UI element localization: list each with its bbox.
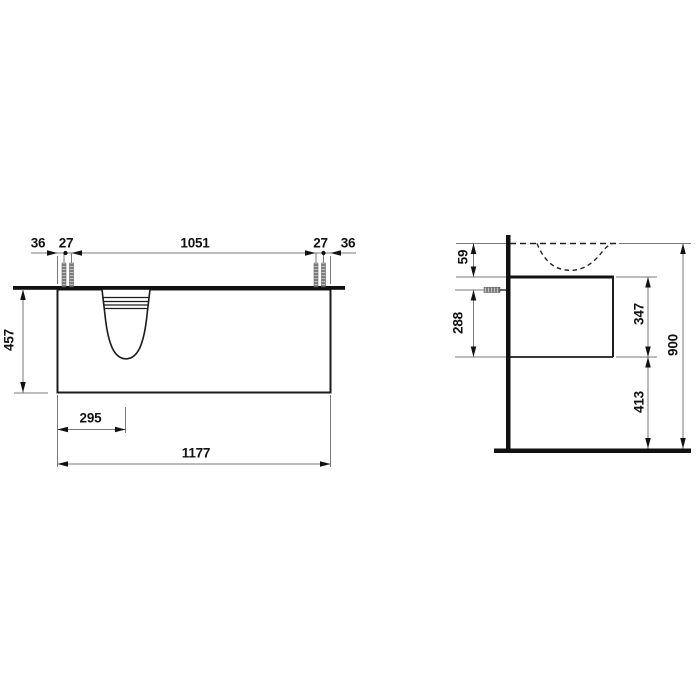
side-view [455, 235, 691, 453]
dim-label-total-width: 1177 [182, 446, 211, 460]
arrow-up-icon [680, 244, 686, 255]
dim-label-floor-clearance: 413 [632, 391, 646, 413]
arrow-down-icon [645, 438, 651, 449]
side-dimension-arrows [471, 244, 686, 449]
wall-line [506, 235, 511, 453]
cabinet-side-outline [508, 276, 613, 358]
arrow-left-icon [331, 250, 342, 256]
arrow-right-icon [115, 427, 126, 433]
arrow-left-icon [72, 250, 83, 256]
floor-line [494, 449, 691, 454]
dimension-point-dot [321, 251, 325, 255]
dim-label-side-cabinet-height: 347 [632, 303, 646, 325]
mounting-bolt-icon [322, 263, 326, 287]
dim-label-cabinet-height: 457 [2, 329, 16, 351]
arrow-down-icon [680, 438, 686, 449]
arrow-down-icon [471, 267, 477, 278]
dim-label-total-height: 900 [666, 334, 680, 356]
arrow-up-icon [645, 277, 651, 288]
mounting-bolt-icon [62, 263, 66, 287]
vanity-dimension-drawing [0, 0, 700, 700]
arrow-up-icon [471, 244, 477, 255]
technical-drawing-canvas: 36 27 1051 27 36 457 295 1177 59 288 347… [0, 0, 700, 700]
dim-label-right-edge-to-bolt: 36 [341, 236, 356, 250]
arrow-up-icon [471, 290, 477, 301]
arrow-right-icon [305, 250, 316, 256]
dim-label-left-bolt-gap: 27 [59, 236, 74, 250]
dimension-point-dot [63, 251, 67, 255]
dim-label-screw-to-bottom: 288 [451, 312, 465, 334]
wall-screw-icon [484, 287, 500, 292]
dim-label-rim-to-top: 59 [456, 250, 470, 265]
mounting-bolts [62, 263, 326, 287]
dim-label-left-edge-to-bolt: 36 [31, 236, 46, 250]
wall-screw [484, 287, 506, 292]
arrow-left-icon [58, 461, 69, 467]
dim-label-bolt-span: 1051 [180, 236, 209, 250]
side-dimension-lines [455, 244, 691, 449]
arrow-down-icon [471, 347, 477, 358]
cabinet-front-outline [58, 290, 331, 393]
front-view [13, 250, 356, 467]
arrow-up-icon [20, 290, 26, 301]
washbasin-dashed-profile [510, 244, 616, 271]
mounting-bolt-icon [314, 263, 318, 287]
arrow-right-icon [320, 461, 331, 467]
arrow-right-icon [47, 250, 58, 256]
arrow-left-icon [58, 427, 69, 433]
dim-label-basin-center: 295 [80, 411, 102, 425]
arrow-down-icon [20, 382, 26, 393]
mounting-bolt-icon [70, 263, 74, 287]
arrow-up-icon [645, 357, 651, 368]
dim-label-right-bolt-gap: 27 [313, 236, 328, 250]
arrow-down-icon [645, 347, 651, 358]
